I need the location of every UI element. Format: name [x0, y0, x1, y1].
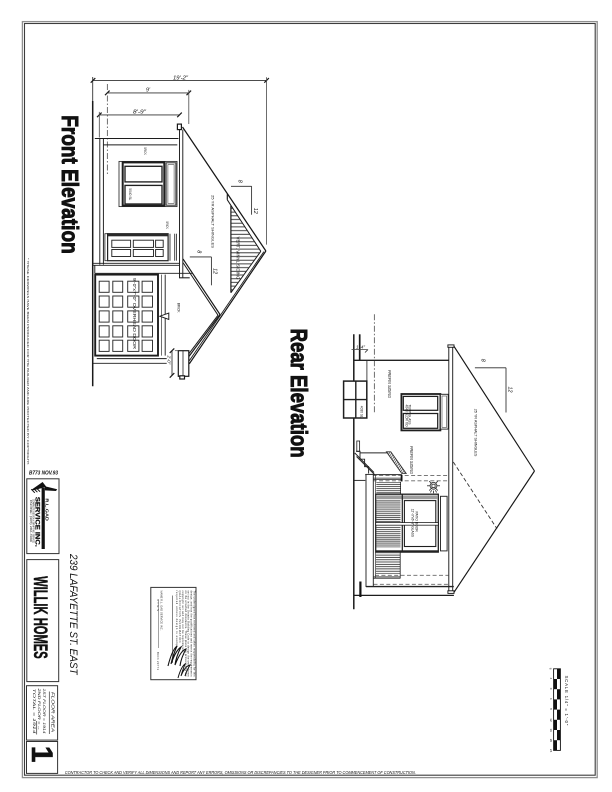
svg-text:12: 12 — [252, 208, 258, 214]
svg-text:* THESE DRAWINGS HAVE BEEN PRO: * THESE DRAWINGS HAVE BEEN PRODUCED FOR … — [26, 258, 30, 465]
svg-text:TEMP GLASS: TEMP GLASS — [407, 405, 411, 426]
svg-text:5040 SL: 5040 SL — [128, 188, 132, 200]
svg-text:8: 8 — [196, 250, 202, 253]
svg-text:8: 8 — [480, 359, 486, 362]
svg-text:24: 24 — [549, 749, 553, 753]
svg-text:VERT. VINYL SIDING: VERT. VINYL SIDING — [236, 237, 241, 280]
svg-text:2'-0": 2'-0" — [166, 355, 171, 365]
svg-text:4030 SL: 4030 SL — [359, 406, 363, 418]
svg-text:8'-9": 8'-9" — [133, 110, 147, 116]
svg-text:12: 12 — [549, 718, 553, 722]
svg-text:19'-2": 19'-2" — [173, 75, 189, 81]
svg-text:BRICK: BRICK — [177, 303, 181, 313]
svg-text:PHONE: (305) 282-4996: PHONE: (305) 282-4996 — [29, 500, 33, 543]
svg-text:1: 1 — [25, 746, 58, 763]
svg-text:NAME R.L. GAD SERVICE INC.: NAME R.L. GAD SERVICE INC. — [159, 591, 163, 631]
svg-text:WILLIK HOMES: WILLIK HOMES — [29, 576, 50, 659]
svg-text:239 LAFAYETTE ST. EAST: 239 LAFAYETTE ST. EAST — [67, 553, 79, 676]
svg-text:R.L.GAD: R.L.GAD — [45, 498, 50, 521]
svg-text:PREFIN SIDING: PREFIN SIDING — [409, 446, 414, 475]
svg-text:12: 12 — [506, 387, 512, 393]
svg-text:20: 20 — [549, 739, 553, 743]
svg-text:B773 NOV.93: B773 NOV.93 — [29, 471, 58, 477]
svg-text:25 YR ASPHALT SHINGLES: 25 YR ASPHALT SHINGLES — [211, 195, 216, 248]
svg-text:25 YR ASPHALT SHINGLES: 25 YR ASPHALT SHINGLES — [474, 409, 479, 457]
svg-text:TOTAL = 1914: TOTAL = 1914 — [32, 689, 37, 735]
svg-text:required unless design is exem: required unless design is exempt. — [175, 591, 179, 649]
svg-text:16: 16 — [549, 729, 553, 733]
svg-text:BRICK: BRICK — [165, 221, 169, 229]
svg-text:12'-0"x6'-8" GLASS: 12'-0"x6'-8" GLASS — [411, 509, 415, 538]
svg-text:Rear Elevation: Rear Elevation — [286, 329, 312, 458]
svg-text:PATIO DOOR: PATIO DOOR — [415, 512, 419, 533]
svg-text:9'-0"x7'-0" OVERHEAD DOOR: 9'-0"x7'-0" OVERHEAD DOOR — [132, 278, 137, 350]
svg-text:PREFIN SIDING: PREFIN SIDING — [387, 370, 392, 399]
svg-text:12: 12 — [212, 268, 218, 274]
svg-text:8: 8 — [237, 180, 243, 183]
svg-text:CONTRACTOR TO CHECK AND VERIFY: CONTRACTOR TO CHECK AND VERIFY ALL DIMEN… — [65, 770, 416, 775]
svg-text:1'-4": 1'-4" — [356, 344, 365, 349]
svg-text:BRICK: BRICK — [143, 147, 147, 155]
svg-text:SCALE 1/4" = 1'-0": SCALE 1/4" = 1'-0" — [564, 676, 569, 727]
svg-text:Front Elevation: Front Elevation — [57, 115, 83, 254]
svg-text:FLOOR AREA: FLOOR AREA — [50, 692, 55, 732]
svg-text:BCIN 23771: BCIN 23771 — [156, 652, 160, 671]
